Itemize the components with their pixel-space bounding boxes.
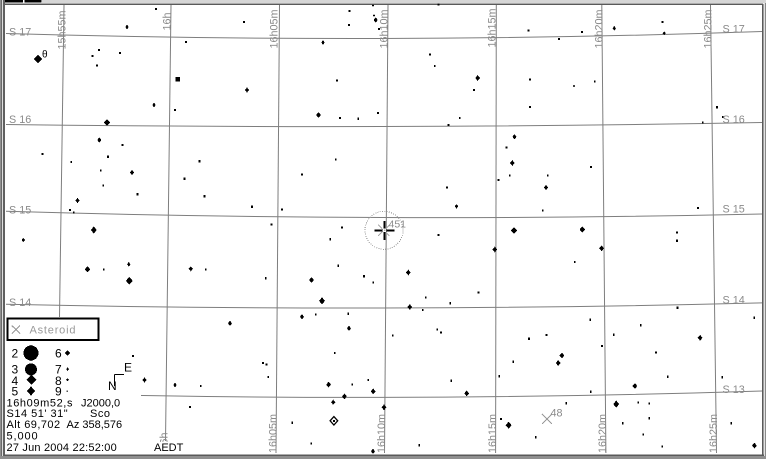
svg-text:5: 5 — [12, 385, 19, 399]
svg-text:S 14: S 14 — [723, 295, 745, 307]
svg-text:θ: θ — [42, 50, 48, 61]
svg-text:Asteroid: Asteroid — [30, 325, 77, 337]
svg-text:S 15: S 15 — [9, 205, 31, 217]
svg-text:48: 48 — [551, 408, 563, 420]
svg-text:AEDT: AEDT — [154, 442, 184, 454]
svg-text:16h25m: 16h25m — [708, 414, 720, 453]
svg-text:Alt 69,702: Alt 69,702 — [7, 419, 61, 431]
svg-text:15h55m: 15h55m — [57, 10, 69, 49]
svg-text:S 16: S 16 — [723, 114, 745, 126]
svg-text:6: 6 — [55, 347, 62, 361]
svg-text:2: 2 — [12, 347, 19, 361]
svg-text:9: 9 — [55, 385, 62, 399]
svg-text:Az 358,576: Az 358,576 — [67, 419, 123, 431]
svg-text:S 16: S 16 — [9, 114, 31, 126]
svg-text:16h15m: 16h15m — [487, 414, 499, 453]
svg-text:5,000: 5,000 — [7, 431, 39, 443]
svg-text:16h20m: 16h20m — [597, 414, 609, 453]
svg-text:27 Jun 2004 22:52:00: 27 Jun 2004 22:52:00 — [7, 442, 117, 454]
svg-text:S 13: S 13 — [723, 384, 745, 396]
svg-text:S 15: S 15 — [723, 204, 745, 216]
svg-text:S 14: S 14 — [9, 297, 31, 309]
svg-text:16h20m: 16h20m — [594, 9, 606, 48]
svg-text:S 17: S 17 — [723, 24, 745, 36]
svg-text:N: N — [108, 379, 117, 393]
svg-text:16h15m: 16h15m — [487, 8, 499, 47]
svg-text:E: E — [124, 361, 132, 375]
svg-text:16h10m: 16h10m — [379, 9, 391, 48]
svg-text:16h05m: 16h05m — [269, 9, 281, 48]
svg-text:451: 451 — [389, 219, 407, 231]
svg-text:S 17: S 17 — [9, 27, 31, 39]
svg-text:16h10m: 16h10m — [376, 414, 388, 453]
svg-text:16h: 16h — [162, 12, 174, 30]
svg-text:16h25m: 16h25m — [703, 9, 715, 48]
svg-text:16h05m: 16h05m — [268, 414, 280, 453]
